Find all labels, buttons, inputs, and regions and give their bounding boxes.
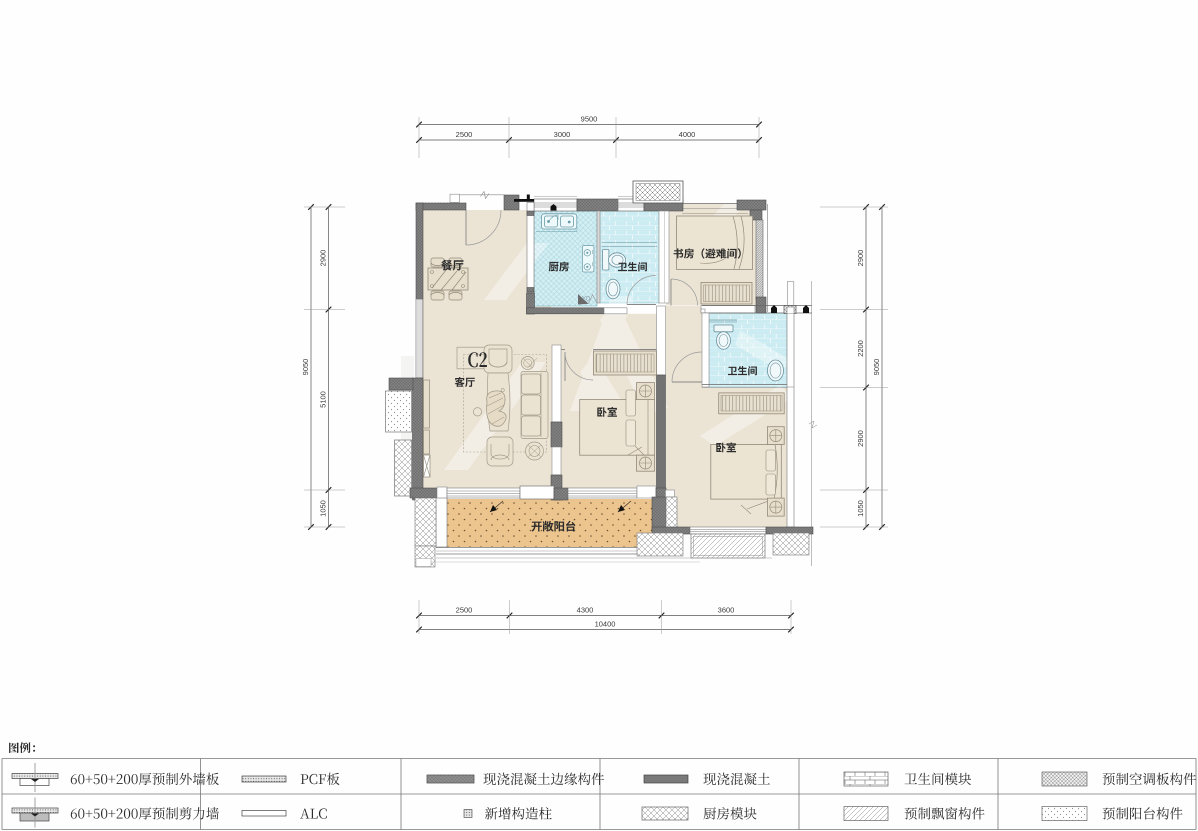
svg-text:5100: 5100 (319, 391, 328, 408)
svg-text:1050: 1050 (856, 500, 865, 517)
svg-text:3600: 3600 (718, 606, 735, 615)
svg-text:9500: 9500 (581, 115, 598, 124)
svg-text:2500: 2500 (456, 606, 473, 615)
svg-text:4300: 4300 (577, 606, 594, 615)
svg-text:2900: 2900 (856, 250, 865, 267)
svg-text:9050: 9050 (872, 359, 881, 376)
svg-text:YD: YD (582, 297, 591, 303)
svg-text:9050: 9050 (301, 359, 310, 376)
svg-text:2900: 2900 (319, 250, 328, 267)
svg-text:4000: 4000 (679, 130, 696, 139)
svg-text:2500: 2500 (456, 130, 473, 139)
svg-text:3000: 3000 (554, 130, 571, 139)
svg-text:2900: 2900 (856, 430, 865, 447)
svg-text:2200: 2200 (856, 340, 865, 357)
svg-text:1050: 1050 (319, 500, 328, 517)
svg-text:10400: 10400 (595, 620, 616, 629)
